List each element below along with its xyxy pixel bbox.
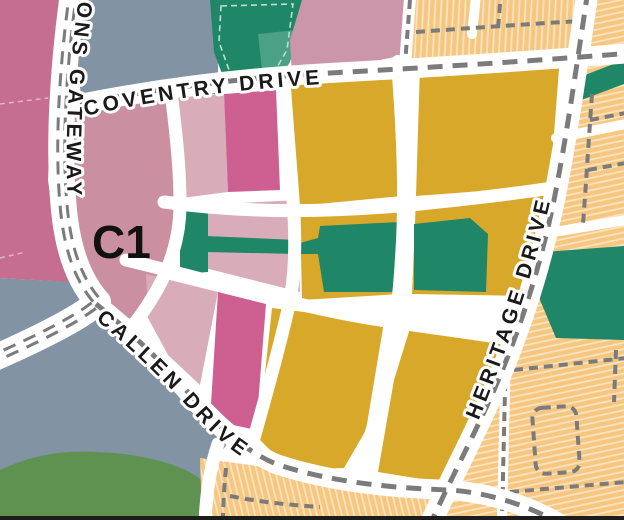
- map-bottom-edge: [0, 516, 624, 520]
- park-strip-east[interactable]: [414, 218, 488, 292]
- parcel-gold-b[interactable]: [416, 56, 560, 196]
- zone-label-c1: C1: [92, 216, 151, 268]
- zoning-map-canvas[interactable]: SONS GATEWAY COVENTRY DRIVE CALLEN DRIVE…: [0, 0, 624, 520]
- parcel-magenta-upper[interactable]: [224, 90, 280, 192]
- street-north-lot: [472, 0, 476, 34]
- zoning-map-svg[interactable]: SONS GATEWAY COVENTRY DRIVE CALLEN DRIVE…: [0, 0, 624, 520]
